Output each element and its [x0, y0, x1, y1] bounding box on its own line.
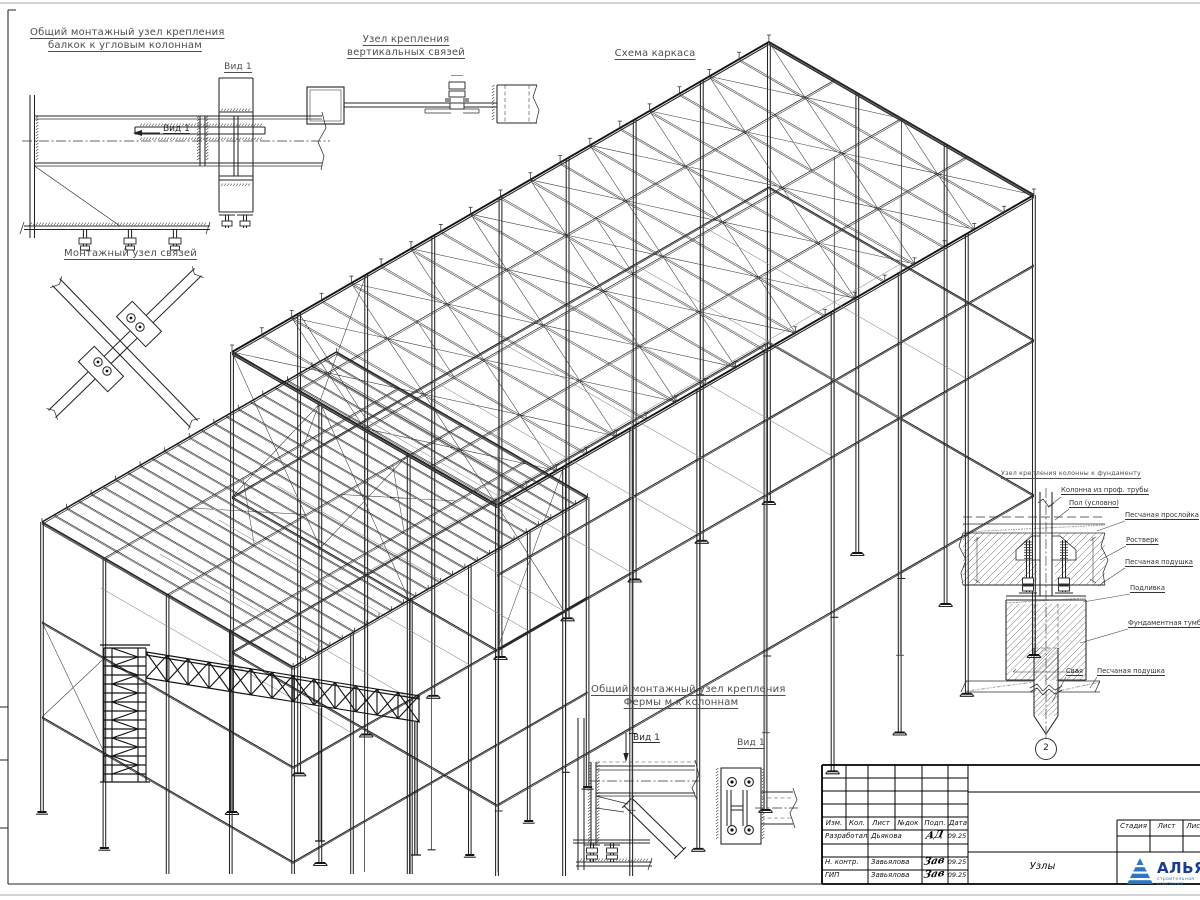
- tb-row1-role: Разработал: [825, 832, 867, 840]
- label-pedestal: Фундаментная тумба: [1128, 619, 1200, 627]
- tb-row2-role: Н. контр.: [825, 858, 859, 866]
- tb-row3-date: 09.25: [946, 871, 968, 879]
- tb-row2-name: Завьялова: [871, 858, 909, 866]
- drawing-canvas: [0, 0, 1200, 900]
- alliance-logo-pyramid-icon: [1126, 856, 1154, 886]
- alliance-logo-text: АЛЬЯНС: [1157, 859, 1200, 877]
- view1-label-arrow-truss: Вид 1: [633, 733, 660, 743]
- title-foundation-detail: Узел крепления колонны к фундаменту: [986, 470, 1156, 477]
- label-sand-layer: Песчаная прослойка: [1125, 511, 1199, 519]
- title-corner-detail-line1: Общий монтажный узел крепления: [30, 27, 220, 39]
- tb-doc-title: Узлы: [968, 861, 1117, 872]
- title-brace-detail: Монтажный узел связей: [58, 248, 203, 260]
- title-truss-detail-line2: Фермы м к колоннам: [591, 697, 771, 709]
- tb-col-data: Дата: [944, 819, 972, 827]
- tb-col-sheet: Лист: [1150, 822, 1183, 830]
- tb-row2-date: 09.25: [946, 858, 968, 866]
- title-vbrace-detail-line2: вертикальных связей: [331, 47, 481, 59]
- tb-row1-name: Дьякова: [871, 832, 902, 840]
- label-floor: Пол (условно): [1069, 499, 1119, 507]
- title-frame-scheme: Схема каркаса: [598, 48, 712, 60]
- tb-col-sheets: Листов: [1183, 822, 1200, 830]
- tb-row1-signature: АД: [925, 829, 945, 842]
- tb-col-ndok: №док: [894, 819, 922, 827]
- tb-row3-role: ГИП: [825, 871, 839, 879]
- line-layer: [0, 3, 1200, 895]
- label-grout: Подливка: [1130, 584, 1165, 592]
- drawing-sheet: Общий монтажный узел крепления балкок к …: [0, 0, 1200, 900]
- alliance-logo-subtext: строительная компания: [1157, 877, 1200, 887]
- label-grillage: Ростверк: [1126, 536, 1159, 544]
- tb-row1-date: 09.25: [946, 832, 968, 840]
- tb-row3-name: Завьялова: [871, 871, 909, 879]
- label-pile: Свая: [1066, 667, 1083, 675]
- symbol-layer: [79, 76, 1070, 859]
- view1-label-truss-view: Вид 1: [729, 738, 773, 748]
- label-sand-cushion: Песчаная подушка: [1125, 558, 1193, 566]
- tb-col-list: Лист: [867, 819, 895, 827]
- tb-col-stage: Стадия: [1117, 822, 1150, 830]
- title-vbrace-detail-line1: Узел крепления: [331, 34, 481, 46]
- title-truss-detail-line1: Общий монтажный узел крепления: [591, 684, 771, 696]
- label-column-pipe: Колонна из проф. трубы: [1061, 486, 1149, 494]
- title-corner-detail-line2: балкок к угловым колоннам: [30, 40, 220, 52]
- label-sand-cushion2: Песчаная подушка: [1097, 667, 1165, 675]
- detail-marker-2: 2: [1036, 743, 1056, 753]
- view1-label-arrow-corner: Вид 1: [163, 124, 190, 134]
- view1-label-corner-view: Вид 1: [216, 62, 260, 72]
